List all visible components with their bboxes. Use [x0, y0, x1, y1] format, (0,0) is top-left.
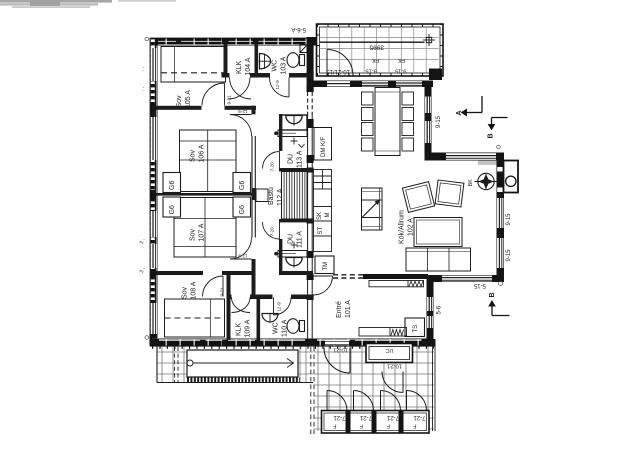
svg-text:9-15: 9-15 [395, 68, 407, 74]
svg-text:Sov: Sov [190, 228, 197, 241]
svg-text:WC: WC [273, 322, 280, 334]
svg-text:112 A: 112 A [277, 188, 284, 206]
svg-text:9-21: 9-21 [227, 95, 232, 105]
svg-text:104 A: 104 A [245, 57, 252, 75]
svg-text:9-15: 9-15 [506, 213, 512, 226]
svg-text:7-21: 7-21 [333, 414, 346, 420]
svg-text:TS: TS [413, 325, 419, 333]
svg-text:KLK: KLK [236, 322, 243, 336]
svg-text:12-9: 12-9 [275, 80, 280, 90]
svg-text:5-15: 5-15 [473, 282, 486, 288]
svg-text:B: B [488, 133, 495, 138]
svg-text:UC: UC [386, 347, 394, 353]
svg-text:110 A: 110 A [282, 319, 289, 337]
svg-text:10-21: 10-21 [387, 363, 402, 369]
svg-text:Sov: Sov [182, 286, 189, 299]
svg-text:106 A: 106 A [199, 144, 206, 162]
svg-text:111 A: 111 A [297, 231, 304, 248]
svg-text:ST: ST [318, 226, 324, 234]
svg-text:DM K/F: DM K/F [321, 136, 327, 157]
svg-text:101 A: 101 A [345, 300, 352, 318]
svg-text:103 A: 103 A [281, 56, 288, 74]
svg-text:G6: G6 [239, 181, 246, 190]
svg-text:109 A: 109 A [245, 319, 252, 337]
svg-text:9-15: 9-15 [365, 68, 377, 74]
svg-text:Sov: Sov [190, 149, 197, 162]
svg-text:9-21: 9-21 [220, 287, 225, 297]
svg-text:107 A: 107 A [199, 223, 206, 241]
svg-text:7-20: 7-20 [270, 162, 275, 172]
svg-text:7-21: 7-21 [386, 414, 399, 420]
svg-text:105 A: 105 A [185, 90, 192, 108]
svg-text:G6: G6 [169, 205, 176, 214]
svg-text:10-21: 10-21 [333, 346, 348, 352]
svg-text:12-9: 12-9 [238, 254, 248, 259]
svg-text:113 A: 113 A [297, 150, 304, 168]
svg-text:10-21/15: 10-21/15 [326, 68, 350, 74]
svg-text:7-20: 7-20 [270, 227, 275, 237]
svg-text:Kök/Allrum: Kök/Allrum [399, 210, 406, 244]
svg-text:9-15: 9-15 [506, 249, 512, 262]
svg-text:BK: BK [468, 179, 474, 187]
svg-text:M: M [325, 213, 331, 218]
svg-text:7-21: 7-21 [359, 414, 372, 420]
svg-text:Entré: Entré [336, 301, 343, 318]
svg-text:G6: G6 [169, 181, 176, 190]
svg-text:TM: TM [323, 262, 329, 271]
svg-text:5-6-A: 5-6-A [291, 26, 306, 32]
svg-text:3995: 3995 [369, 44, 384, 51]
svg-text:108 A: 108 A [191, 281, 198, 299]
svg-text:12-9: 12-9 [277, 302, 282, 312]
svg-text:A: A [456, 110, 463, 115]
svg-text:9-15: 9-15 [436, 115, 442, 128]
svg-text:Sov: Sov [176, 95, 183, 108]
svg-text:G6: G6 [239, 205, 246, 214]
svg-text:DU: DU [288, 154, 295, 164]
svg-text:WC: WC [272, 60, 279, 72]
svg-text:B: B [489, 292, 496, 297]
svg-text:SK: SK [317, 212, 323, 220]
svg-text:7-21: 7-21 [413, 414, 426, 420]
svg-text:FK: FK [398, 57, 405, 63]
svg-text:102 A: 102 A [408, 218, 415, 236]
svg-text:5-6: 5-6 [436, 305, 442, 314]
svg-text:KLK: KLK [236, 60, 243, 74]
svg-text:12-9: 12-9 [238, 109, 248, 114]
svg-text:DU: DU [288, 234, 295, 244]
svg-text:Bastu: Bastu [268, 187, 275, 205]
svg-text:FK: FK [372, 57, 379, 63]
